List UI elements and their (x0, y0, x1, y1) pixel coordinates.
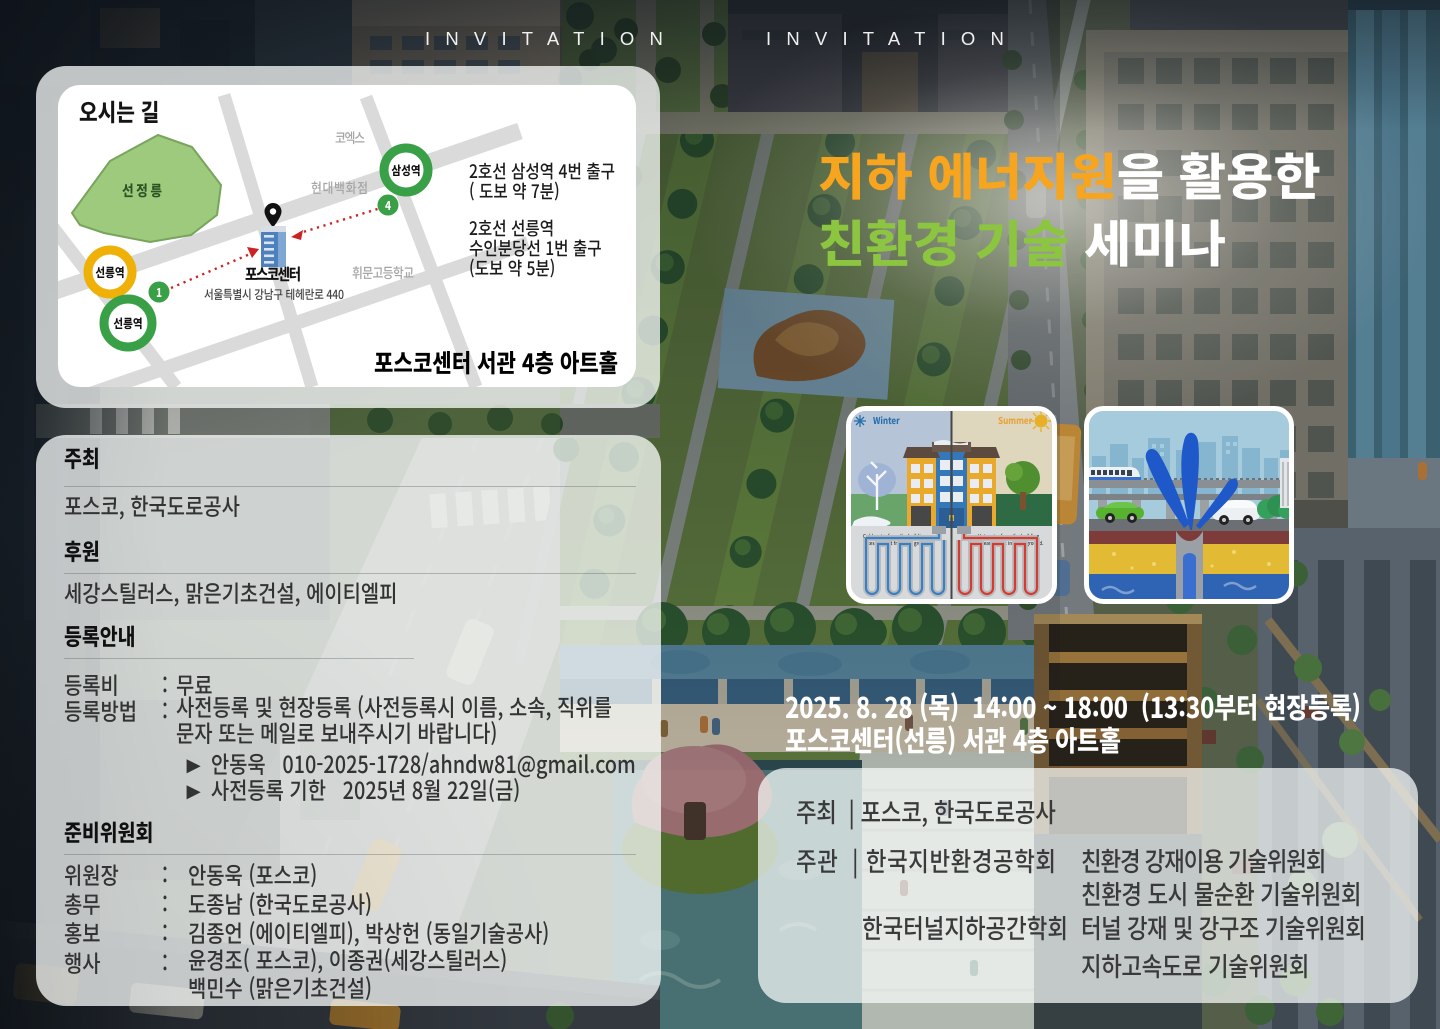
svg-text:휘문고등학교: 휘문고등학교 (352, 263, 414, 283)
svg-text:삼성역: 삼성역 (391, 160, 420, 179)
svg-text:4: 4 (385, 197, 391, 214)
svg-text:현대백화점: 현대백화점 (311, 178, 368, 198)
svg-text:선릉역: 선릉역 (113, 313, 142, 332)
svg-text:포스코센터: 포스코센터 (245, 261, 301, 285)
svg-text:Winter: Winter (873, 413, 900, 427)
svg-text:선정릉: 선정릉 (122, 180, 162, 201)
svg-text:1: 1 (156, 284, 162, 301)
svg-text:코엑스: 코엑스 (335, 128, 365, 148)
svg-text:Summer: Summer (998, 413, 1033, 427)
svg-text:서울특별시 강남구 테헤란로 440: 서울특별시 강남구 테헤란로 440 (204, 284, 344, 303)
svg-text:선릉역: 선릉역 (95, 262, 124, 281)
